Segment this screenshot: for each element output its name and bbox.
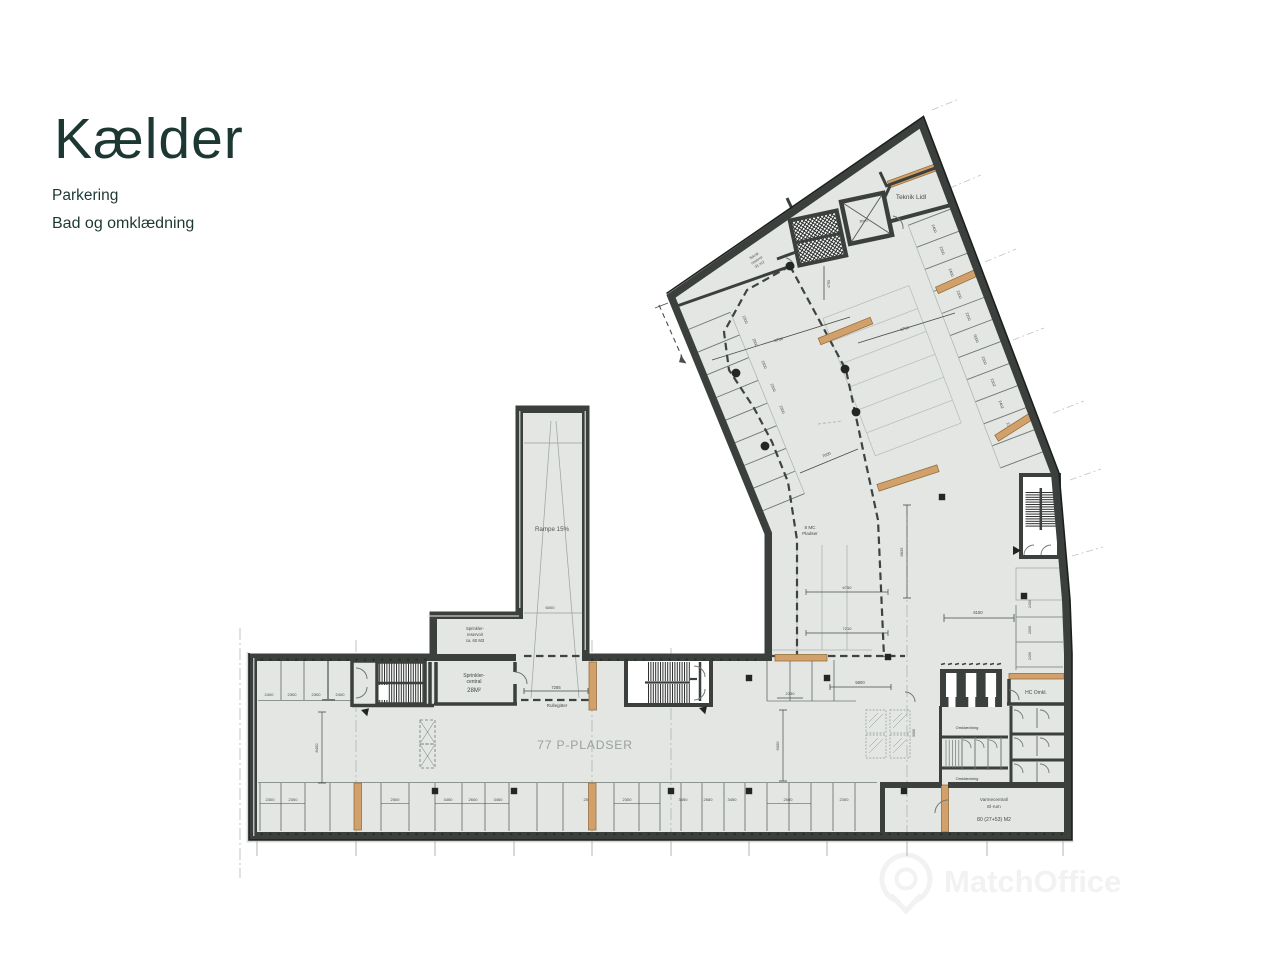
- svg-text:Varmecentral/: Varmecentral/: [980, 797, 1009, 802]
- svg-text:6750: 6750: [843, 585, 853, 590]
- svg-text:3450: 3450: [494, 797, 504, 802]
- svg-text:Kælder: Kælder: [54, 107, 244, 171]
- svg-text:2300: 2300: [288, 692, 298, 697]
- svg-text:2400: 2400: [1028, 652, 1032, 660]
- svg-text:2400: 2400: [336, 692, 346, 697]
- svg-text:2300: 2300: [289, 797, 299, 802]
- svg-text:2300: 2300: [266, 797, 276, 802]
- svg-text:HC Omkl.: HC Omkl.: [1025, 690, 1047, 696]
- svg-text:Omklædning: Omklædning: [956, 725, 979, 730]
- svg-text:8835: 8835: [899, 547, 904, 557]
- svg-text:77 P-PLADSER: 77 P-PLADSER: [537, 738, 633, 752]
- svg-text:3450: 3450: [444, 797, 454, 802]
- svg-text:2400: 2400: [265, 692, 275, 697]
- svg-text:2000: 2000: [1028, 626, 1032, 634]
- svg-text:Rullegitter: Rullegitter: [547, 703, 568, 708]
- svg-text:7210: 7210: [843, 626, 853, 631]
- svg-text:2330: 2330: [786, 691, 796, 696]
- svg-text:80 (27+53) M2: 80 (27+53) M2: [977, 817, 1011, 823]
- svg-text:2400: 2400: [1028, 600, 1032, 608]
- svg-text:6000: 6000: [775, 741, 780, 751]
- svg-text:8 MC: 8 MC: [805, 525, 817, 530]
- svg-text:ca. 60 M3: ca. 60 M3: [466, 638, 485, 643]
- svg-text:6000: 6000: [546, 605, 556, 610]
- svg-text:2580: 2580: [704, 797, 714, 802]
- svg-text:2500: 2500: [784, 797, 794, 802]
- svg-text:Bad og omklædning: Bad og omklædning: [52, 215, 194, 232]
- svg-text:Rampe 15%: Rampe 15%: [535, 526, 570, 533]
- svg-text:2600: 2600: [469, 797, 479, 802]
- svg-text:3450: 3450: [728, 797, 738, 802]
- svg-text:6150: 6150: [973, 610, 983, 615]
- svg-text:3450: 3450: [679, 797, 689, 802]
- svg-text:reservoir: reservoir: [467, 632, 484, 637]
- svg-text:7285: 7285: [551, 685, 561, 690]
- svg-text:28M²: 28M²: [467, 688, 481, 694]
- svg-text:central: central: [466, 679, 481, 685]
- svg-text:3000: 3000: [912, 729, 916, 737]
- svg-text:8400: 8400: [314, 743, 319, 753]
- svg-text:Pladser: Pladser: [802, 531, 818, 536]
- svg-text:2300: 2300: [312, 692, 322, 697]
- svg-text:Sprinkler-: Sprinkler-: [466, 626, 485, 631]
- svg-text:Omklædning: Omklædning: [956, 776, 979, 781]
- svg-text:2500: 2500: [391, 797, 401, 802]
- svg-text:Teknik Lidl: Teknik Lidl: [896, 194, 927, 201]
- svg-text:Parkering: Parkering: [52, 187, 118, 204]
- svg-text:El-rum: El-rum: [987, 804, 1001, 809]
- svg-text:2300: 2300: [840, 797, 850, 802]
- svg-text:4750: 4750: [827, 280, 831, 288]
- svg-text:5800: 5800: [855, 680, 865, 685]
- svg-text:2300: 2300: [623, 797, 633, 802]
- svg-text:MatchOffice: MatchOffice: [944, 864, 1121, 899]
